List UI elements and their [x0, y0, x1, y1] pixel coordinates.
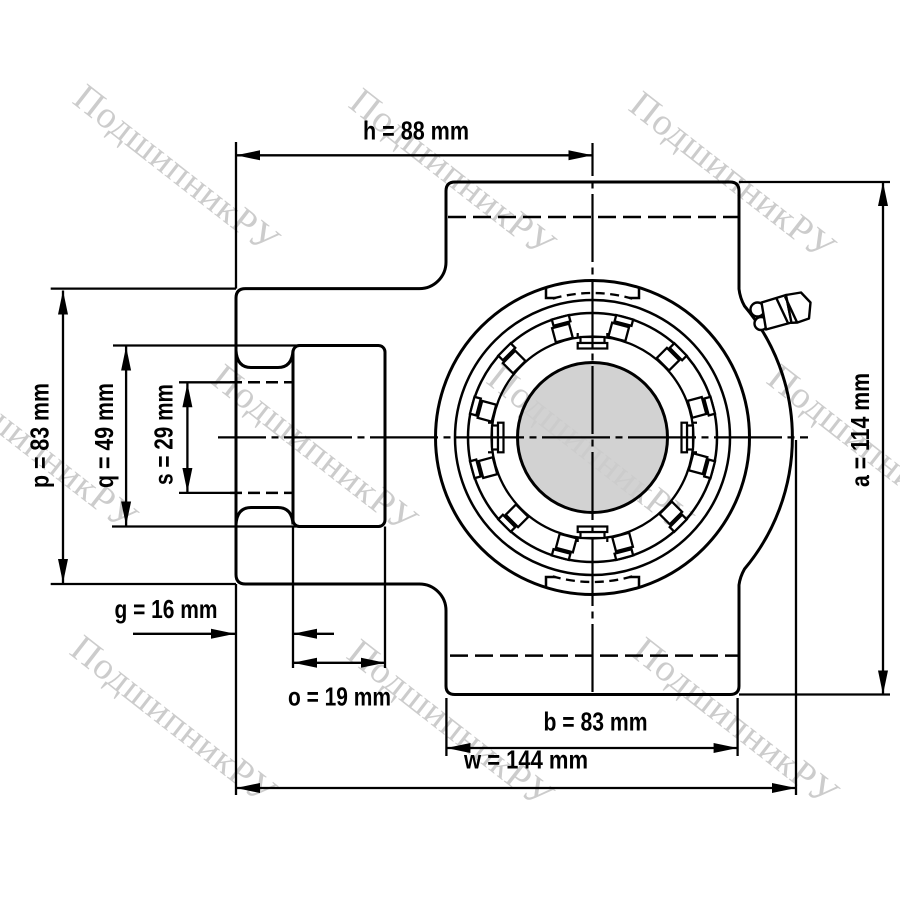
svg-text:h = 88 mm: h = 88 mm — [363, 116, 469, 146]
svg-text:g = 16 mm: g = 16 mm — [115, 594, 218, 624]
svg-text:o = 19 mm: o = 19 mm — [288, 682, 391, 712]
svg-text:p = 83 mm: p = 83 mm — [25, 383, 55, 488]
svg-text:w = 144 mm: w = 144 mm — [463, 745, 588, 775]
svg-text:a = 114 mm: a = 114 mm — [845, 373, 875, 487]
svg-text:s = 29 mm: s = 29 mm — [149, 384, 179, 485]
svg-text:b = 83 mm: b = 83 mm — [544, 707, 648, 737]
svg-text:q = 49 mm: q = 49 mm — [89, 383, 119, 488]
